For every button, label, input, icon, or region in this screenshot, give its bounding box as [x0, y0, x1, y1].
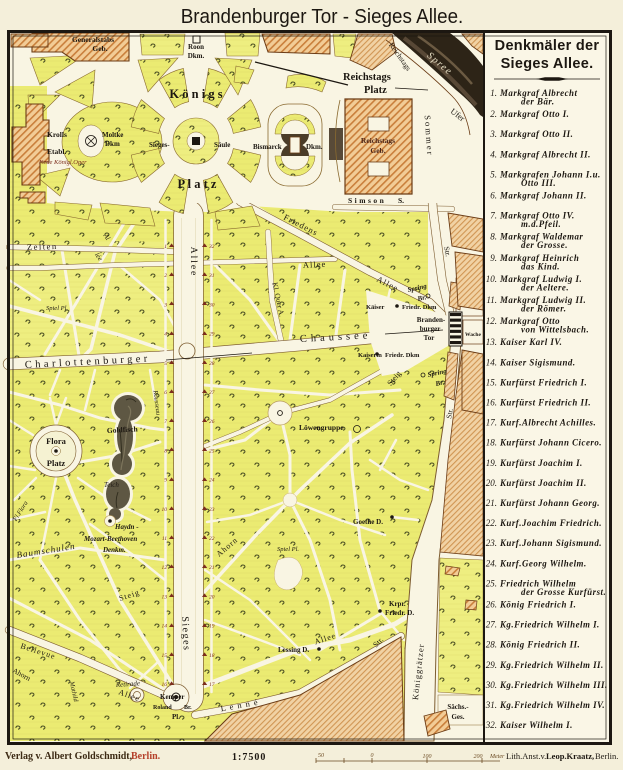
- svg-text:Pl.: Pl.: [172, 713, 180, 721]
- svg-text:Roon: Roon: [188, 43, 204, 51]
- svg-text:m.d.Pfeil.: m.d.Pfeil.: [521, 219, 561, 229]
- svg-text:Krpr.: Krpr.: [389, 600, 406, 608]
- svg-text:Kg.Friedrich Wilhelm III.: Kg.Friedrich Wilhelm III.: [499, 680, 608, 690]
- svg-text:3: 3: [163, 302, 167, 308]
- svg-text:3.: 3.: [489, 129, 497, 139]
- svg-text:19.: 19.: [486, 458, 497, 468]
- svg-text:22.: 22.: [486, 518, 497, 528]
- svg-text:Kurfürst Friedrich II.: Kurfürst Friedrich II.: [499, 398, 591, 408]
- svg-text:Goethe D.: Goethe D.: [353, 518, 383, 526]
- svg-text:4.: 4.: [490, 149, 497, 159]
- svg-text:Haydn -: Haydn -: [114, 523, 139, 531]
- svg-text:Teich: Teich: [104, 481, 119, 489]
- svg-text:2: 2: [164, 273, 167, 279]
- svg-text:29.: 29.: [486, 660, 497, 670]
- svg-text:12.: 12.: [486, 316, 497, 326]
- svg-text:Mozart-Beethoven: Mozart-Beethoven: [83, 535, 137, 543]
- svg-text:Geb.: Geb.: [92, 44, 107, 53]
- svg-text:17.: 17.: [486, 418, 497, 428]
- svg-text:1.: 1.: [490, 88, 497, 98]
- svg-text:2.: 2.: [490, 109, 497, 119]
- svg-text:Friedr. Dkm: Friedr. Dkm: [385, 352, 420, 359]
- svg-text:der Aeltere.: der Aeltere.: [521, 282, 569, 292]
- svg-text:Meter: Meter: [489, 754, 505, 760]
- svg-text:14: 14: [162, 623, 168, 630]
- svg-text:31.: 31.: [485, 700, 497, 710]
- svg-text:Sieges: Sieges: [179, 616, 192, 652]
- svg-text:1:7500: 1:7500: [232, 752, 266, 763]
- svg-text:der Bär.: der Bär.: [521, 97, 555, 107]
- svg-text:Friedr. Dkm: Friedr. Dkm: [402, 304, 437, 311]
- svg-text:Markgraf Johann II.: Markgraf Johann II.: [499, 191, 587, 201]
- svg-text:13: 13: [162, 594, 168, 600]
- svg-text:Säule: Säule: [214, 141, 230, 149]
- svg-text:Etabl.: Etabl.: [47, 147, 67, 156]
- svg-text:23.: 23.: [486, 538, 497, 548]
- svg-text:16.: 16.: [486, 398, 497, 408]
- svg-text:Denkm.: Denkm.: [102, 546, 126, 554]
- svg-text:7: 7: [164, 419, 167, 425]
- svg-text:13.: 13.: [486, 337, 497, 347]
- svg-text:Reichstags: Reichstags: [361, 136, 395, 145]
- svg-text:27.: 27.: [486, 620, 497, 630]
- svg-text:Denkmäler der: Denkmäler der: [495, 38, 600, 54]
- svg-text:Bismarck: Bismarck: [253, 143, 282, 151]
- svg-text:14.: 14.: [486, 357, 497, 367]
- svg-text:24.: 24.: [486, 558, 497, 568]
- svg-text:22: 22: [209, 536, 215, 542]
- svg-text:der Römer.: der Römer.: [521, 304, 566, 314]
- svg-text:Zelten: Zelten: [27, 241, 58, 252]
- svg-text:Sieges-: Sieges-: [149, 141, 170, 149]
- svg-text:Spiel Pl.: Spiel Pl.: [277, 546, 299, 553]
- svg-text:Allee: Allee: [303, 259, 327, 270]
- svg-text:31: 31: [208, 273, 215, 279]
- svg-text:10: 10: [162, 507, 168, 513]
- svg-text:P l a t z: P l a t z: [178, 177, 217, 191]
- svg-text:Brandenburger Tor - Sieges A: Brandenburger Tor - Sieges Allee.: [181, 5, 464, 28]
- svg-text:29: 29: [209, 332, 215, 338]
- svg-text:21: 21: [209, 565, 215, 571]
- svg-text:4: 4: [164, 331, 167, 338]
- svg-text:Moltke: Moltke: [102, 131, 123, 139]
- svg-text:Markgraf Otto II.: Markgraf Otto II.: [499, 129, 573, 139]
- svg-text:5.: 5.: [490, 169, 497, 179]
- svg-text:200: 200: [474, 754, 483, 760]
- svg-text:Reichstags: Reichstags: [343, 72, 391, 83]
- svg-text:50: 50: [318, 753, 324, 759]
- svg-text:28.: 28.: [486, 640, 497, 650]
- svg-text:30.: 30.: [485, 680, 497, 690]
- svg-text:Dkm: Dkm: [105, 140, 120, 148]
- svg-text:Kurfürst Johann Georg.: Kurfürst Johann Georg.: [499, 498, 600, 508]
- svg-text:Berlin.: Berlin.: [131, 751, 161, 762]
- svg-text:Flora: Flora: [46, 436, 67, 446]
- svg-text:32: 32: [208, 244, 215, 250]
- svg-text:Kurf.Joachim Friedrich.: Kurf.Joachim Friedrich.: [499, 518, 602, 528]
- svg-text:Branden-: Branden-: [417, 316, 446, 324]
- svg-text:Platz: Platz: [364, 85, 387, 96]
- svg-text:8: 8: [164, 448, 167, 454]
- svg-text:Löwengruppe: Löwengruppe: [299, 423, 344, 432]
- svg-text:Dkm.: Dkm.: [306, 143, 323, 151]
- svg-text:Neue Königl.Oper: Neue Königl.Oper: [38, 159, 87, 166]
- svg-text:Roland: Roland: [153, 705, 172, 711]
- svg-text:Friedr. D.: Friedr. D.: [385, 609, 414, 617]
- svg-text:11.: 11.: [486, 295, 497, 305]
- svg-text:1: 1: [164, 244, 167, 250]
- svg-text:Kurfürst Johann Cicero.: Kurfürst Johann Cicero.: [499, 438, 602, 448]
- svg-text:Kaiserin: Kaiserin: [358, 352, 382, 359]
- svg-text:Kaiser Sigismund.: Kaiser Sigismund.: [499, 357, 576, 367]
- svg-text:15: 15: [162, 653, 168, 659]
- svg-text:20.: 20.: [486, 478, 497, 488]
- svg-text:Str.: Str.: [444, 408, 455, 420]
- svg-text:18: 18: [209, 653, 215, 659]
- svg-text:23: 23: [209, 507, 215, 513]
- svg-text:Platz: Platz: [47, 458, 66, 468]
- svg-text:Lith.Anst.v.: Lith.Anst.v.: [506, 751, 546, 761]
- svg-text:26: 26: [209, 419, 215, 425]
- svg-text:25: 25: [209, 448, 215, 454]
- svg-text:0: 0: [371, 753, 374, 759]
- svg-text:Lessing D.: Lessing D.: [278, 646, 309, 654]
- svg-text:26.: 26.: [486, 600, 497, 610]
- svg-text:32.: 32.: [485, 720, 497, 730]
- svg-text:Leop.Kraatz,: Leop.Kraatz,: [546, 751, 594, 761]
- svg-text:16: 16: [162, 682, 168, 688]
- svg-text:Kurf.Albrecht Achilles.: Kurf.Albrecht Achilles.: [499, 418, 596, 428]
- svg-text:der Grosse.: der Grosse.: [521, 240, 568, 250]
- svg-text:7.: 7.: [490, 211, 497, 221]
- svg-text:6.: 6.: [490, 191, 497, 201]
- svg-text:Kurfürst Joachim I.: Kurfürst Joachim I.: [499, 458, 583, 468]
- svg-text:8.: 8.: [490, 232, 497, 242]
- svg-text:Kurfürst Joachim II.: Kurfürst Joachim II.: [499, 478, 587, 488]
- svg-text:19: 19: [209, 624, 215, 630]
- svg-text:Kurf.Georg Wilhelm.: Kurf.Georg Wilhelm.: [499, 558, 587, 568]
- svg-text:27: 27: [209, 390, 215, 396]
- svg-text:Verlag v. Albert Goldschmidt,: Verlag v. Albert Goldschmidt,: [5, 751, 133, 762]
- svg-text:24: 24: [209, 477, 215, 484]
- svg-text:Kg.Friedrich Wilhelm IV.: Kg.Friedrich Wilhelm IV.: [499, 700, 605, 710]
- svg-text:Otto III.: Otto III.: [521, 178, 556, 188]
- svg-text:18.: 18.: [486, 438, 497, 448]
- svg-text:Ges.: Ges.: [451, 713, 464, 721]
- svg-text:Kemper: Kemper: [160, 693, 185, 701]
- svg-text:10.: 10.: [486, 274, 497, 284]
- svg-text:Wache: Wache: [465, 332, 481, 338]
- svg-text:das Kind.: das Kind.: [521, 261, 560, 271]
- svg-text:Kurf.Johann Sigismund.: Kurf.Johann Sigismund.: [499, 538, 602, 548]
- svg-text:Käiser: Käiser: [366, 304, 385, 311]
- svg-text:9: 9: [164, 478, 167, 484]
- svg-text:Kaiser Wilhelm I.: Kaiser Wilhelm I.: [499, 720, 573, 730]
- svg-text:Allee: Allee: [188, 247, 198, 278]
- svg-text:Markgraf Otto I.: Markgraf Otto I.: [499, 109, 569, 119]
- svg-text:9.: 9.: [490, 253, 497, 263]
- svg-text:König Friedrich I.: König Friedrich I.: [499, 600, 576, 610]
- svg-text:28: 28: [209, 361, 215, 367]
- svg-text:Br.: Br.: [184, 705, 192, 711]
- svg-text:17: 17: [209, 682, 215, 688]
- svg-text:Geb.: Geb.: [370, 146, 385, 155]
- svg-text:20: 20: [209, 594, 215, 600]
- svg-text:Sächs.-: Sächs.-: [447, 703, 469, 711]
- svg-text:Kurfürst Friedrich I.: Kurfürst Friedrich I.: [499, 377, 587, 387]
- svg-text:12: 12: [162, 565, 168, 571]
- svg-text:11: 11: [162, 536, 167, 542]
- svg-text:S.: S.: [398, 196, 404, 205]
- svg-text:Spiel Pl.: Spiel Pl.: [46, 305, 68, 312]
- svg-text:K ö n i g s: K ö n i g s: [169, 87, 222, 101]
- svg-text:Markgraf Albrecht II.: Markgraf Albrecht II.: [499, 149, 591, 159]
- svg-text:5: 5: [164, 361, 167, 367]
- svg-text:15.: 15.: [486, 377, 497, 387]
- svg-text:30: 30: [208, 302, 215, 308]
- svg-text:König Friedrich II.: König Friedrich II.: [499, 640, 580, 650]
- svg-text:Sieges Allee.: Sieges Allee.: [501, 56, 594, 72]
- svg-text:6: 6: [164, 390, 167, 396]
- svg-text:Kg.Friedrich Wilhelm II.: Kg.Friedrich Wilhelm II.: [499, 660, 604, 670]
- svg-text:100: 100: [423, 754, 432, 760]
- svg-text:Kaiser Karl IV.: Kaiser Karl IV.: [499, 337, 562, 347]
- svg-text:21.: 21.: [486, 498, 497, 508]
- svg-text:Dkm.: Dkm.: [188, 52, 205, 60]
- svg-text:Simson: Simson: [348, 196, 386, 205]
- svg-text:der Grosse Kurfürst.: der Grosse Kurfürst.: [521, 587, 606, 597]
- svg-text:Goldfisch: Goldfisch: [107, 424, 139, 435]
- svg-text:von Wittelsbach.: von Wittelsbach.: [521, 325, 589, 335]
- svg-text:25.: 25.: [486, 578, 497, 588]
- svg-text:Krolls: Krolls: [47, 130, 67, 139]
- svg-text:Tor: Tor: [424, 334, 435, 342]
- svg-text:burger: burger: [420, 325, 441, 333]
- svg-text:Kg.Friedrich Wilhelm I.: Kg.Friedrich Wilhelm I.: [499, 620, 600, 630]
- svg-text:Berlin.: Berlin.: [595, 751, 618, 761]
